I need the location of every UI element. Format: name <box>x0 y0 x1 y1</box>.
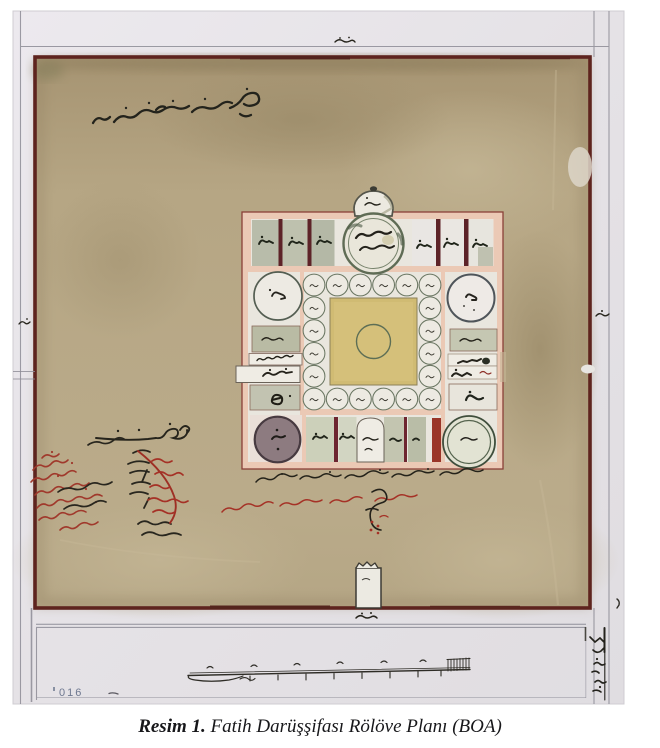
svg-text:016: 016 <box>59 687 83 699</box>
svg-text:Resim 1. Fatih Darüşşifası Röl: Resim 1. Fatih Darüşşifası Rölöve Planı … <box>137 716 502 737</box>
